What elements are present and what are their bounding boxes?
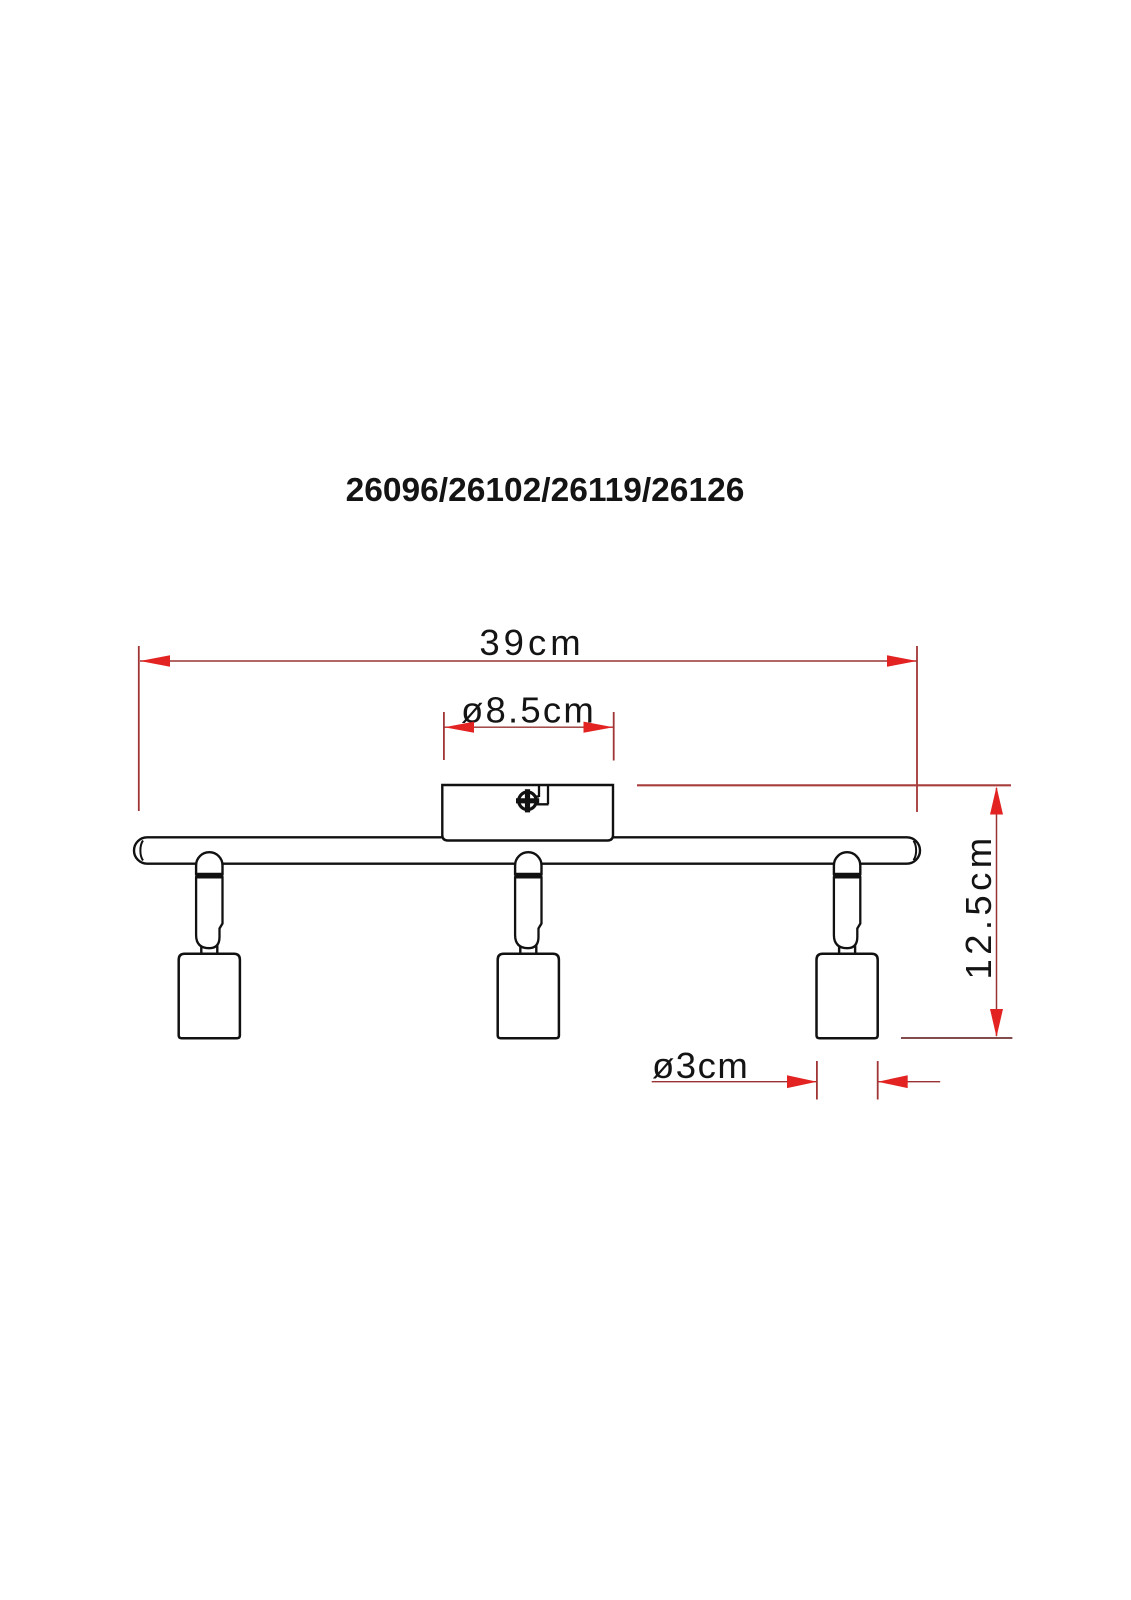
svg-text:ø3cm: ø3cm bbox=[652, 1045, 749, 1086]
svg-text:ø8.5cm: ø8.5cm bbox=[461, 690, 596, 731]
svg-text:39cm: 39cm bbox=[479, 622, 584, 663]
svg-text:12.5cm: 12.5cm bbox=[958, 833, 999, 979]
svg-text:26096/26102/26119/26126: 26096/26102/26119/26126 bbox=[346, 472, 745, 509]
